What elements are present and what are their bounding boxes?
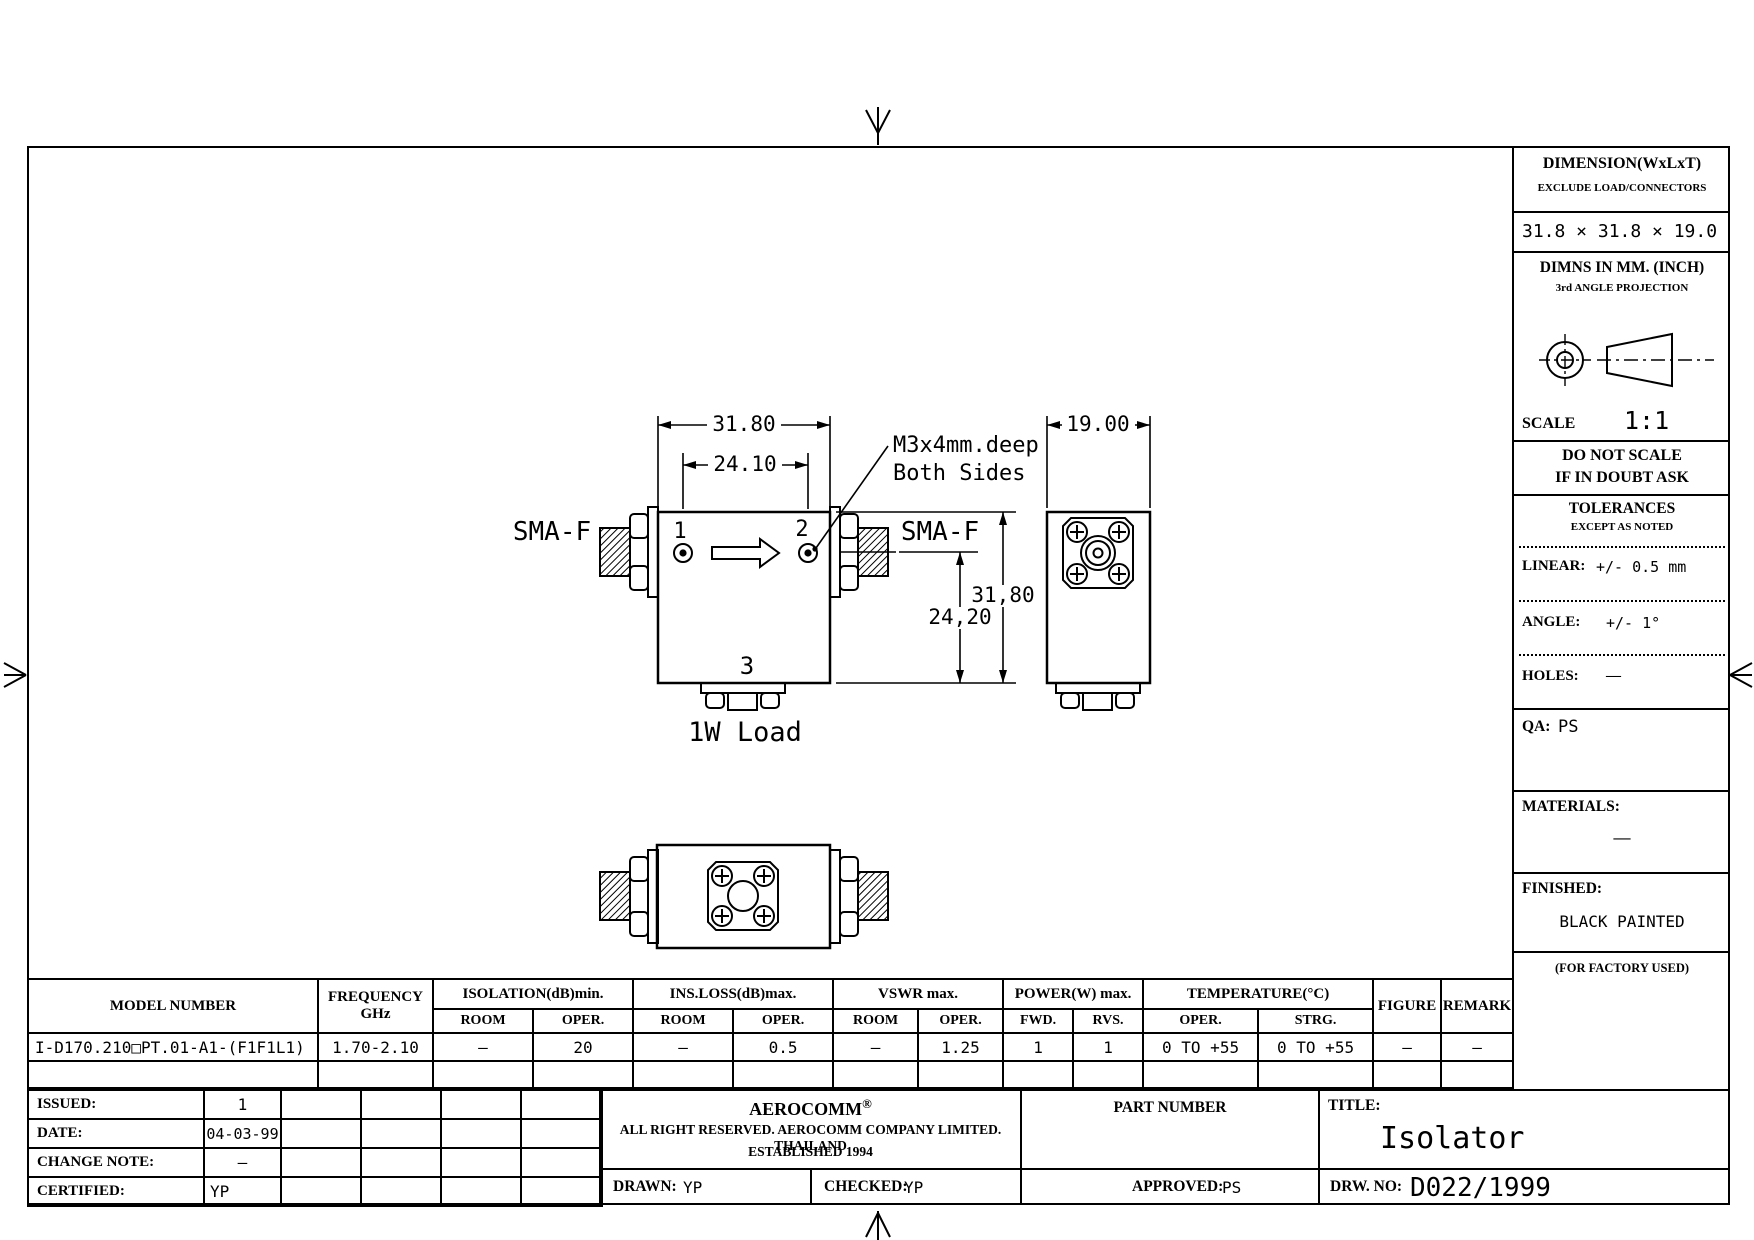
col-figure: FIGURE xyxy=(1373,979,1441,1033)
title-cell: TITLE: Isolator xyxy=(1318,1089,1730,1170)
checked-value: YP xyxy=(904,1178,923,1197)
frequency-unit: GHz xyxy=(319,1006,432,1023)
dimension-note: EXCLUDE LOAD/CONNECTORS xyxy=(1514,182,1730,194)
subcol-temp-oper: OPER. xyxy=(1143,1009,1258,1033)
drw-no-value: D022/1999 xyxy=(1410,1173,1551,1203)
subcol-insloss-oper: OPER. xyxy=(733,1009,833,1033)
drawn-value: YP xyxy=(683,1178,702,1197)
tolerances-sub: EXCEPT AS NOTED xyxy=(1514,521,1730,533)
scale-value: 1:1 xyxy=(1624,406,1669,435)
materials-value: — xyxy=(1514,828,1730,848)
spec-row: I-D170.210□PT.01-A1-(F1F1L1) 1.70-2.10 –… xyxy=(28,1033,1513,1061)
do-not-scale-line2: IF IN DOUBT ASK xyxy=(1514,469,1730,487)
divider xyxy=(1519,654,1725,656)
drw-no-label: DRW. NO: xyxy=(1330,1178,1402,1196)
certified-row: CERTIFIED: YP xyxy=(28,1177,602,1206)
certified-label: CERTIFIED: xyxy=(28,1177,204,1206)
frequency-label: FREQUENCY xyxy=(319,989,432,1006)
cell-temp-strg: 0 TO +55 xyxy=(1258,1033,1373,1061)
issued-table: ISSUED: 1 DATE: 04-03-99 CHANGE NOTE: – … xyxy=(27,1089,603,1207)
linear-value: +/- 0.5 mm xyxy=(1596,558,1686,576)
col-model-number: MODEL NUMBER xyxy=(28,979,318,1033)
finished-value: BLACK PAINTED xyxy=(1514,912,1730,931)
dimension-value: 31.8 × 31.8 × 19.0 xyxy=(1522,221,1717,242)
dimension-cell: DIMENSION(WxLxT) EXCLUDE LOAD/CONNECTORS xyxy=(1514,146,1730,213)
cell-figure: — xyxy=(1373,1033,1441,1061)
tolerances-title: TOLERANCES xyxy=(1514,500,1730,518)
subcol-power-fwd: FWD. xyxy=(1003,1009,1073,1033)
cell-power-rvs: 1 xyxy=(1073,1033,1143,1061)
cell-temp-oper: 0 TO +55 xyxy=(1143,1033,1258,1061)
qa-label: QA: xyxy=(1522,718,1550,736)
company-name-line: AEROCOMM® xyxy=(601,1096,1020,1120)
change-note-row: CHANGE NOTE: – xyxy=(28,1148,602,1177)
cell-vswr-room: – xyxy=(833,1033,918,1061)
col-power: POWER(W) max. xyxy=(1003,979,1143,1009)
projection-label: 3rd ANGLE PROJECTION xyxy=(1514,282,1730,294)
title-block: DIMENSION(WxLxT) EXCLUDE LOAD/CONNECTORS… xyxy=(1512,146,1730,1089)
subcol-isolation-room: ROOM xyxy=(433,1009,533,1033)
subcol-isolation-oper: OPER. xyxy=(533,1009,633,1033)
drw-no-cell: DRW. NO: D022/1999 xyxy=(1318,1168,1730,1205)
cell-isolation-room: – xyxy=(433,1033,533,1061)
cell-frequency: 1.70-2.10 xyxy=(318,1033,433,1061)
approved-cell: APPROVED: PS xyxy=(1020,1168,1320,1205)
divider xyxy=(1519,600,1725,602)
checked-label: CHECKED: xyxy=(824,1178,908,1196)
subcol-power-rvs: RVS. xyxy=(1073,1009,1143,1033)
subcol-insloss-room: ROOM xyxy=(633,1009,733,1033)
date-label: DATE: xyxy=(28,1119,204,1148)
materials-cell: MATERIALS: — xyxy=(1514,792,1730,874)
factory-note: (FOR FACTORY USED) xyxy=(1514,961,1730,976)
cell-power-fwd: 1 xyxy=(1003,1033,1073,1061)
company-name: AEROCOMM xyxy=(749,1099,862,1119)
change-note-label: CHANGE NOTE: xyxy=(28,1148,204,1177)
spec-table: MODEL NUMBER FREQUENCY GHz ISOLATION(dB)… xyxy=(27,978,1514,1089)
title-value: Isolator xyxy=(1380,1121,1525,1156)
col-ins-loss: INS.LOSS(dB)max. xyxy=(633,979,833,1009)
issued-label: ISSUED: xyxy=(28,1090,204,1119)
cell-vswr-oper: 1.25 xyxy=(918,1033,1003,1061)
issued-row: ISSUED: 1 xyxy=(28,1090,602,1119)
subcol-temp-strg: STRG. xyxy=(1258,1009,1373,1033)
col-vswr: VSWR max. xyxy=(833,979,1003,1009)
angle-value: +/- 1° xyxy=(1606,614,1660,632)
checked-cell: CHECKED: YP xyxy=(810,1168,1022,1205)
col-temperature: TEMPERATURE(°C) xyxy=(1143,979,1373,1009)
qa-cell: QA: PS xyxy=(1514,710,1730,792)
angle-label: ANGLE: xyxy=(1522,614,1580,631)
part-number-block: PART NUMBER xyxy=(1020,1089,1320,1170)
cell-isolation-oper: 20 xyxy=(533,1033,633,1061)
dimension-label: DIMENSION(WxLxT) xyxy=(1514,155,1730,173)
title-label: TITLE: xyxy=(1328,1097,1381,1115)
subcol-vswr-oper: OPER. xyxy=(918,1009,1003,1033)
col-isolation: ISOLATION(dB)min. xyxy=(433,979,633,1009)
drawn-cell: DRAWN: YP xyxy=(599,1168,812,1205)
issued-value: 1 xyxy=(204,1090,281,1119)
date-value: 04-03-99 xyxy=(204,1119,281,1148)
dimns-label: DIMNS IN MM. (INCH) xyxy=(1514,259,1730,277)
company-block: AEROCOMM® ALL RIGHT RESERVED. AEROCOMM C… xyxy=(599,1089,1022,1170)
projection-cell: DIMNS IN MM. (INCH) 3rd ANGLE PROJECTION… xyxy=(1514,253,1730,442)
divider xyxy=(1519,546,1725,548)
cell-model: I-D170.210□PT.01-A1-(F1F1L1) xyxy=(28,1033,318,1061)
do-not-scale-cell: DO NOT SCALE IF IN DOUBT ASK xyxy=(1514,442,1730,496)
holes-value: — xyxy=(1606,668,1621,685)
date-row: DATE: 04-03-99 xyxy=(28,1119,602,1148)
tolerances-cell: TOLERANCES EXCEPT AS NOTED LINEAR: +/- 0… xyxy=(1514,496,1730,710)
drawing-sheet: 31.80 24.10 19.00 31,80 24,20 M3x4mm.dee… xyxy=(0,0,1754,1240)
change-note-value: – xyxy=(204,1148,281,1177)
holes-label: HOLES: xyxy=(1522,668,1579,685)
finished-label: FINISHED: xyxy=(1522,880,1602,898)
part-number-label: PART NUMBER xyxy=(1022,1099,1318,1117)
cell-remark: — xyxy=(1441,1033,1513,1061)
scale-label: SCALE xyxy=(1522,415,1575,433)
certified-value: YP xyxy=(204,1177,281,1206)
finished-cell: FINISHED: BLACK PAINTED xyxy=(1514,874,1730,953)
approved-label: APPROVED: xyxy=(1132,1178,1223,1196)
cell-insloss-oper: 0.5 xyxy=(733,1033,833,1061)
col-remark: REMARK xyxy=(1441,979,1513,1033)
approved-value: PS xyxy=(1222,1178,1241,1197)
materials-label: MATERIALS: xyxy=(1522,798,1620,816)
registered-icon: ® xyxy=(862,1096,872,1111)
cell-insloss-room: – xyxy=(633,1033,733,1061)
company-line3: ESTABLISHED 1994 xyxy=(601,1144,1020,1160)
col-frequency: FREQUENCY GHz xyxy=(318,979,433,1033)
dimension-value-cell: 31.8 × 31.8 × 19.0 xyxy=(1514,213,1730,253)
do-not-scale-line1: DO NOT SCALE xyxy=(1514,447,1730,465)
subcol-vswr-room: ROOM xyxy=(833,1009,918,1033)
linear-label: LINEAR: xyxy=(1522,558,1585,575)
spec-row-empty xyxy=(28,1061,1513,1088)
factory-cell: (FOR FACTORY USED) xyxy=(1514,953,1730,1089)
qa-value: PS xyxy=(1558,717,1578,737)
drawn-label: DRAWN: xyxy=(613,1178,677,1196)
